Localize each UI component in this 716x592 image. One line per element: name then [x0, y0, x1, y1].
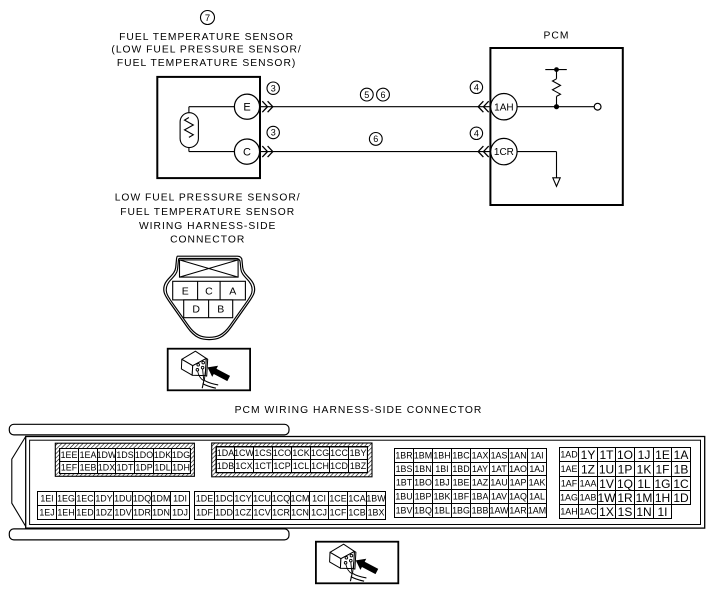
svg-text:FUEL TEMPERATURE SENSOR): FUEL TEMPERATURE SENSOR): [117, 58, 296, 69]
svg-text:1BC: 1BC: [452, 451, 470, 461]
svg-text:C: C: [205, 285, 213, 297]
svg-text:1Q: 1Q: [617, 477, 633, 491]
svg-text:1ED: 1ED: [76, 508, 93, 518]
svg-text:1CS: 1CS: [254, 448, 271, 458]
svg-text:1BO: 1BO: [414, 478, 432, 488]
svg-text:A: A: [229, 285, 236, 297]
svg-text:1CV: 1CV: [253, 508, 270, 518]
svg-text:1CG: 1CG: [311, 448, 329, 458]
svg-text:1AB: 1AB: [580, 493, 597, 503]
svg-text:1DF: 1DF: [196, 508, 213, 518]
svg-text:1EF: 1EF: [61, 463, 78, 473]
svg-text:1CL: 1CL: [293, 461, 309, 471]
svg-text:1I: 1I: [657, 505, 667, 519]
svg-text:3: 3: [271, 83, 276, 93]
svg-text:1CP: 1CP: [273, 461, 290, 471]
svg-text:1DG: 1DG: [172, 450, 190, 460]
svg-text:1BF: 1BF: [453, 492, 470, 502]
svg-text:1F: 1F: [655, 462, 669, 476]
svg-text:7: 7: [205, 13, 210, 24]
svg-text:1CC: 1CC: [330, 448, 348, 458]
svg-text:1CB: 1CB: [348, 508, 365, 518]
svg-text:1AT: 1AT: [491, 464, 507, 474]
svg-text:1W: 1W: [598, 491, 617, 505]
svg-text:C: C: [243, 146, 251, 158]
svg-text:1D: 1D: [673, 491, 689, 505]
svg-text:1EH: 1EH: [57, 508, 74, 518]
svg-text:1DZ: 1DZ: [96, 508, 113, 518]
svg-text:1AH: 1AH: [560, 507, 577, 517]
svg-text:1AK: 1AK: [529, 478, 546, 488]
svg-text:1AL: 1AL: [529, 492, 545, 502]
svg-text:1O: 1O: [617, 448, 633, 462]
svg-text:1BZ: 1BZ: [350, 461, 367, 471]
svg-text:B: B: [217, 304, 224, 316]
svg-text:1EG: 1EG: [57, 494, 75, 504]
svg-text:1AI: 1AI: [530, 451, 543, 461]
svg-text:1AQ: 1AQ: [509, 492, 527, 502]
svg-text:1BQ: 1BQ: [414, 506, 432, 516]
svg-text:1AC: 1AC: [579, 507, 597, 517]
svg-text:1DH: 1DH: [172, 463, 190, 473]
svg-text:1AD: 1AD: [560, 450, 577, 460]
svg-text:1DW: 1DW: [97, 450, 117, 460]
svg-text:1DC: 1DC: [215, 494, 233, 504]
svg-text:1DR: 1DR: [133, 508, 151, 518]
svg-text:1EI: 1EI: [40, 494, 53, 504]
svg-text:1AY: 1AY: [472, 464, 488, 474]
svg-text:1CT: 1CT: [255, 461, 272, 471]
svg-text:1AN: 1AN: [509, 451, 526, 461]
svg-text:1Y: 1Y: [581, 448, 596, 462]
svg-text:1AS: 1AS: [491, 451, 508, 461]
svg-text:1EB: 1EB: [80, 463, 97, 473]
svg-text:1CZ: 1CZ: [235, 508, 252, 518]
svg-text:1AA: 1AA: [580, 479, 597, 489]
svg-text:1V: 1V: [599, 477, 614, 491]
svg-text:1DN: 1DN: [152, 508, 170, 518]
svg-text:(LOW FUEL PRESSURE SENSOR/: (LOW FUEL PRESSURE SENSOR/: [111, 45, 301, 56]
svg-text:5: 5: [364, 90, 369, 100]
svg-text:1N: 1N: [636, 505, 651, 519]
svg-text:1Z: 1Z: [581, 462, 595, 476]
svg-text:1AX: 1AX: [472, 451, 489, 461]
svg-text:1BK: 1BK: [434, 492, 451, 502]
svg-text:1BR: 1BR: [395, 451, 412, 461]
svg-text:1AM: 1AM: [528, 506, 546, 516]
svg-text:1BG: 1BG: [452, 506, 470, 516]
svg-text:1BW: 1BW: [366, 494, 386, 504]
svg-text:1AG: 1AG: [560, 493, 578, 503]
svg-text:1CI: 1CI: [312, 494, 326, 504]
svg-text:1CK: 1CK: [292, 448, 309, 458]
svg-text:1M: 1M: [636, 491, 653, 505]
svg-text:6: 6: [380, 90, 385, 100]
svg-text:6: 6: [373, 134, 378, 144]
svg-text:1CH: 1CH: [311, 461, 329, 471]
svg-text:1DA: 1DA: [217, 448, 234, 458]
svg-text:1BV: 1BV: [396, 506, 413, 516]
svg-text:1DV: 1DV: [114, 508, 131, 518]
svg-text:1BX: 1BX: [368, 508, 385, 518]
svg-text:1DQ: 1DQ: [133, 494, 151, 504]
svg-text:1BE: 1BE: [453, 478, 470, 488]
svg-text:1L: 1L: [637, 477, 651, 491]
svg-text:1B: 1B: [674, 462, 689, 476]
svg-text:1BY: 1BY: [350, 448, 367, 458]
svg-text:1CJ: 1CJ: [311, 508, 327, 518]
svg-text:1H: 1H: [655, 491, 670, 505]
svg-text:1CX: 1CX: [235, 461, 252, 471]
svg-text:PCM WIRING HARNESS-SIDE CONNEC: PCM WIRING HARNESS-SIDE CONNECTOR: [235, 405, 483, 416]
svg-text:1A: 1A: [674, 448, 689, 462]
svg-text:1X: 1X: [599, 505, 614, 519]
svg-text:1AO: 1AO: [509, 464, 527, 474]
svg-text:1DP: 1DP: [135, 463, 152, 473]
svg-text:1BL: 1BL: [434, 506, 450, 516]
svg-text:4: 4: [474, 129, 479, 139]
svg-text:1EC: 1EC: [76, 494, 94, 504]
svg-text:1AW: 1AW: [490, 506, 510, 516]
svg-text:1BI: 1BI: [435, 464, 448, 474]
svg-text:1DI: 1DI: [173, 494, 187, 504]
svg-text:D: D: [192, 304, 200, 316]
svg-text:PCM: PCM: [544, 31, 570, 42]
svg-text:4: 4: [474, 83, 479, 93]
svg-text:1CU: 1CU: [253, 494, 271, 504]
svg-text:1AE: 1AE: [561, 464, 578, 474]
svg-text:WIRING HARNESS-SIDE: WIRING HARNESS-SIDE: [139, 221, 276, 232]
svg-text:1DU: 1DU: [114, 494, 132, 504]
svg-text:1C: 1C: [673, 477, 689, 491]
svg-text:1BM: 1BM: [414, 451, 432, 461]
svg-text:1CD: 1CD: [330, 461, 348, 471]
svg-text:FUEL TEMPERATURE SENSOR: FUEL TEMPERATURE SENSOR: [120, 207, 295, 218]
svg-text:1EJ: 1EJ: [39, 508, 54, 518]
svg-text:1E: 1E: [655, 448, 670, 462]
svg-text:1DK: 1DK: [154, 450, 171, 460]
svg-text:1DY: 1DY: [95, 494, 112, 504]
svg-text:1AR: 1AR: [509, 506, 526, 516]
svg-text:1DB: 1DB: [217, 461, 234, 471]
svg-text:E: E: [243, 102, 250, 114]
svg-text:1J: 1J: [638, 448, 651, 462]
svg-text:1DJ: 1DJ: [172, 508, 188, 518]
svg-text:1AV: 1AV: [491, 492, 507, 502]
svg-text:1DE: 1DE: [196, 494, 213, 504]
svg-text:1DT: 1DT: [117, 463, 134, 473]
svg-text:1BA: 1BA: [472, 492, 489, 502]
svg-text:1AP: 1AP: [510, 478, 527, 488]
svg-text:LOW FUEL PRESSURE SENSOR/: LOW FUEL PRESSURE SENSOR/: [115, 192, 301, 203]
svg-text:3: 3: [271, 128, 276, 138]
svg-text:1DD: 1DD: [215, 508, 233, 518]
svg-text:1BN: 1BN: [414, 464, 431, 474]
svg-text:1EE: 1EE: [61, 450, 78, 460]
svg-text:1CW: 1CW: [234, 448, 254, 458]
svg-text:FUEL TEMPERATURE SENSOR: FUEL TEMPERATURE SENSOR: [119, 32, 294, 43]
svg-text:1P: 1P: [618, 462, 633, 476]
svg-text:1DM: 1DM: [152, 494, 171, 504]
svg-text:1CQ: 1CQ: [272, 494, 290, 504]
svg-text:1BS: 1BS: [396, 464, 413, 474]
svg-text:1BH: 1BH: [433, 451, 450, 461]
svg-text:1AH: 1AH: [494, 102, 513, 113]
svg-text:1EA: 1EA: [80, 450, 97, 460]
svg-text:1CA: 1CA: [348, 494, 365, 504]
svg-text:1AU: 1AU: [490, 478, 507, 488]
svg-text:1BB: 1BB: [472, 506, 489, 516]
svg-text:1BU: 1BU: [395, 492, 412, 502]
svg-text:1DS: 1DS: [116, 450, 133, 460]
svg-text:1AZ: 1AZ: [472, 478, 489, 488]
svg-text:1CO: 1CO: [273, 448, 291, 458]
svg-text:1R: 1R: [617, 491, 633, 505]
svg-text:1G: 1G: [654, 477, 670, 491]
svg-text:1BT: 1BT: [396, 478, 413, 488]
svg-text:1CM: 1CM: [291, 494, 310, 504]
svg-text:1T: 1T: [599, 448, 614, 462]
svg-text:1DX: 1DX: [98, 463, 115, 473]
svg-text:1BD: 1BD: [452, 464, 469, 474]
svg-text:1U: 1U: [599, 462, 614, 476]
svg-text:1AF: 1AF: [561, 479, 578, 489]
svg-text:1BP: 1BP: [415, 492, 432, 502]
svg-text:1CR: 1CR: [494, 147, 514, 158]
svg-text:1K: 1K: [637, 462, 652, 476]
svg-text:E: E: [182, 285, 189, 297]
svg-text:1CR: 1CR: [272, 508, 290, 518]
svg-text:1S: 1S: [618, 505, 633, 519]
svg-text:1CE: 1CE: [329, 494, 346, 504]
svg-text:CONNECTOR: CONNECTOR: [170, 235, 245, 246]
svg-text:1CY: 1CY: [234, 494, 251, 504]
svg-text:1AJ: 1AJ: [529, 464, 544, 474]
svg-text:1BJ: 1BJ: [434, 478, 449, 488]
svg-text:1CN: 1CN: [291, 508, 309, 518]
svg-text:1CF: 1CF: [330, 508, 347, 518]
svg-text:1DL: 1DL: [154, 463, 170, 473]
svg-text:1DO: 1DO: [135, 450, 153, 460]
